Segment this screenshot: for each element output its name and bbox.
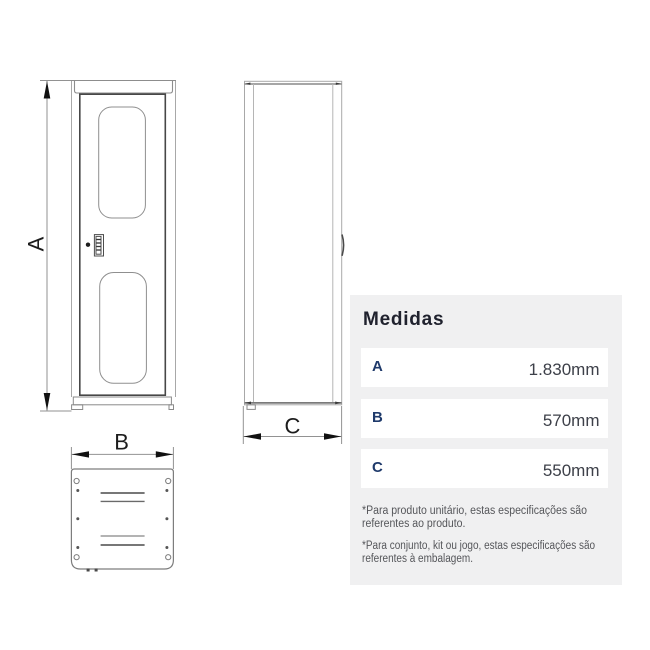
svg-text:A: A bbox=[24, 236, 49, 251]
svg-text:B: B bbox=[114, 430, 129, 455]
svg-text:C: C bbox=[285, 414, 301, 439]
